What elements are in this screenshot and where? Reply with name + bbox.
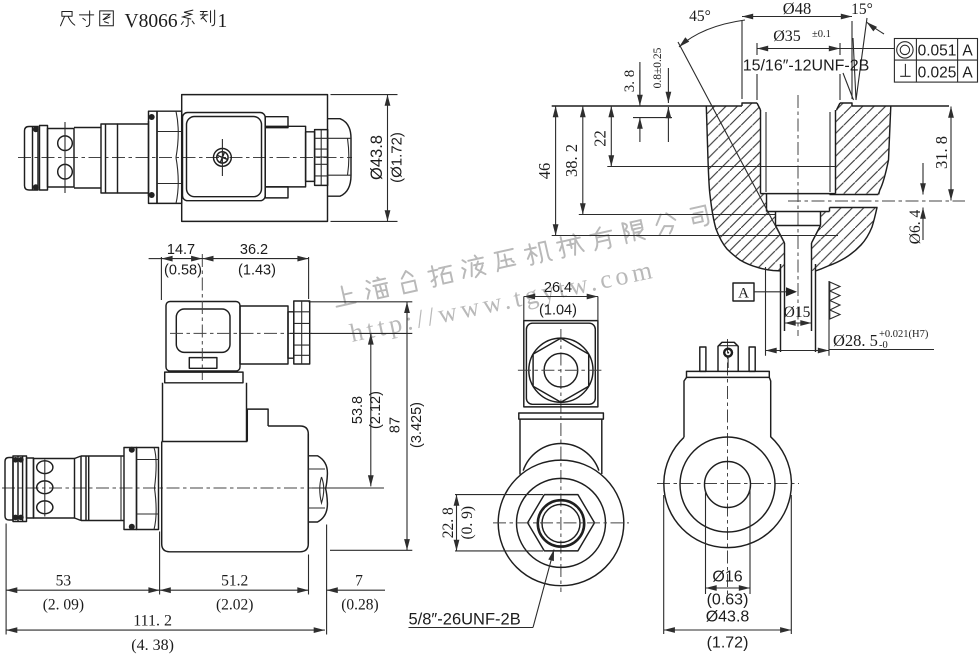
svg-text:51.2: 51.2	[221, 573, 248, 590]
svg-text:+0.021(H7): +0.021(H7)	[879, 329, 929, 340]
svg-text:87: 87	[388, 417, 404, 433]
svg-text:Ø15: Ø15	[784, 304, 811, 321]
svg-text:(0.28): (0.28)	[341, 597, 378, 614]
svg-text:15/16″-12UNF-2B: 15/16″-12UNF-2B	[743, 58, 870, 75]
svg-text:0.025: 0.025	[918, 64, 957, 81]
svg-text:0.051: 0.051	[918, 42, 957, 59]
svg-text:(0. 9): (0. 9)	[459, 506, 476, 540]
svg-text:53: 53	[56, 573, 72, 590]
svg-text:26.4: 26.4	[544, 280, 572, 296]
svg-text:38. 2: 38. 2	[562, 144, 581, 177]
svg-text:(2. 09): (2. 09)	[43, 597, 84, 614]
svg-text:111. 2: 111. 2	[133, 613, 172, 630]
svg-text:(3.425): (3.425)	[409, 402, 425, 448]
svg-text:53.8: 53.8	[350, 396, 366, 424]
svg-text:22: 22	[591, 130, 610, 147]
svg-text:3. 8: 3. 8	[622, 70, 638, 93]
svg-text:5/8″-26UNF-2B: 5/8″-26UNF-2B	[409, 611, 521, 629]
svg-text:Ø6. 4: Ø6. 4	[907, 210, 924, 245]
svg-text:0.8±0.25: 0.8±0.25	[652, 47, 664, 88]
svg-text:36.2: 36.2	[240, 242, 268, 258]
svg-text:(0.58): (0.58)	[164, 263, 202, 279]
svg-text:7: 7	[355, 573, 363, 590]
svg-text:1: 1	[218, 11, 228, 32]
svg-text:(1.04): (1.04)	[539, 303, 577, 319]
svg-text:(1.43): (1.43)	[238, 263, 276, 279]
svg-text:Ø48: Ø48	[783, 0, 811, 18]
svg-text:Ø43.8: Ø43.8	[706, 609, 750, 626]
svg-text:Ø16: Ø16	[712, 569, 742, 586]
svg-text:A: A	[962, 42, 973, 59]
svg-text:(4. 38): (4. 38)	[131, 637, 174, 654]
svg-text:Ø43.8: Ø43.8	[368, 135, 386, 180]
svg-text:(2.02): (2.02)	[216, 597, 253, 614]
svg-text:(1.72): (1.72)	[707, 635, 749, 652]
svg-text:(0.63): (0.63)	[707, 592, 749, 609]
svg-text:Ø35: Ø35	[773, 28, 801, 45]
svg-text:(2.12): (2.12)	[368, 391, 384, 429]
svg-text:46: 46	[535, 163, 554, 180]
svg-text:Ø28. 5: Ø28. 5	[833, 331, 878, 350]
svg-text:15°: 15°	[851, 1, 873, 18]
svg-text:(Ø1.72): (Ø1.72)	[389, 132, 406, 183]
svg-text:A: A	[738, 286, 749, 302]
svg-text:V8066: V8066	[125, 11, 178, 32]
svg-text:14.7: 14.7	[167, 242, 195, 258]
svg-text:±0.1: ±0.1	[812, 29, 831, 40]
svg-text:22. 8: 22. 8	[440, 507, 457, 538]
svg-text:A: A	[962, 64, 973, 81]
svg-text:45°: 45°	[689, 8, 711, 25]
svg-text:31. 8: 31. 8	[932, 136, 951, 169]
svg-text:-0: -0	[879, 340, 888, 351]
